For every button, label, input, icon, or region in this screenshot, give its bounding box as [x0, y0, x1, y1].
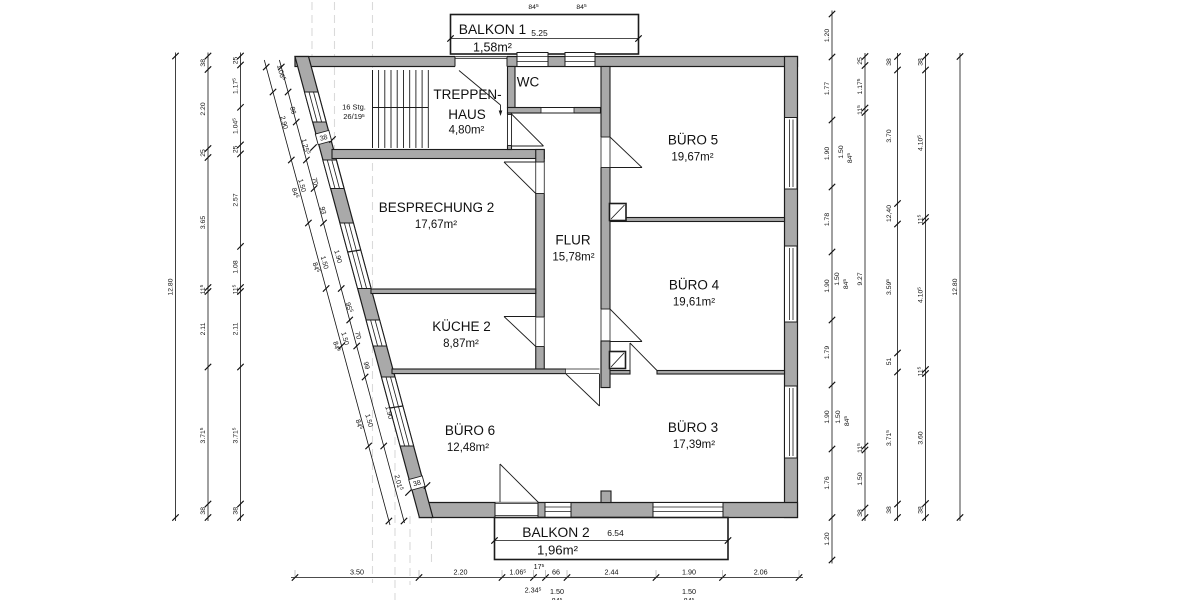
svg-text:BÜRO 5: BÜRO 5: [668, 133, 718, 148]
svg-text:1.20: 1.20: [824, 29, 831, 42]
svg-text:BÜRO 3: BÜRO 3: [668, 420, 718, 435]
svg-text:38: 38: [857, 509, 864, 517]
svg-text:1.08: 1.08: [233, 260, 240, 273]
svg-text:2.06: 2.06: [754, 568, 768, 577]
svg-text:BÜRO 4: BÜRO 4: [669, 278, 720, 293]
svg-text:38: 38: [233, 507, 240, 515]
svg-text:38: 38: [918, 506, 925, 514]
svg-text:BALKON 2: BALKON 2: [522, 525, 589, 540]
svg-text:1.50: 1.50: [838, 145, 845, 158]
svg-text:1.50: 1.50: [550, 587, 564, 596]
svg-text:38: 38: [886, 58, 893, 66]
svg-text:9.27: 9.27: [857, 272, 864, 285]
svg-text:2.57: 2.57: [233, 193, 240, 206]
svg-text:BALKON 1: BALKON 1: [459, 22, 526, 37]
svg-text:1.50: 1.50: [682, 587, 696, 596]
svg-text:2.11: 2.11: [200, 322, 207, 335]
svg-text:17,39m²: 17,39m²: [673, 439, 715, 451]
svg-text:FLUR: FLUR: [555, 233, 591, 248]
svg-text:4,80m²: 4,80m²: [449, 125, 485, 137]
svg-text:2.11: 2.11: [233, 322, 240, 335]
svg-text:3.70: 3.70: [886, 129, 893, 142]
svg-text:1,96m²: 1,96m²: [537, 543, 579, 558]
svg-text:1.90: 1.90: [824, 279, 831, 292]
svg-text:1.90: 1.90: [824, 147, 831, 160]
svg-text:1,58m²: 1,58m²: [473, 41, 512, 55]
svg-text:TREPPEN-: TREPPEN-: [433, 87, 501, 102]
svg-text:HAUS: HAUS: [448, 107, 486, 122]
svg-text:19,61m²: 19,61m²: [673, 297, 715, 309]
svg-text:5.25: 5.25: [531, 28, 548, 38]
svg-text:BESPRECHUNG 2: BESPRECHUNG 2: [379, 200, 495, 215]
svg-text:1.77: 1.77: [824, 82, 831, 95]
svg-text:1.78: 1.78: [824, 213, 831, 226]
svg-text:38: 38: [200, 59, 207, 67]
svg-text:2.20: 2.20: [200, 102, 207, 115]
svg-text:15,78m²: 15,78m²: [552, 252, 594, 264]
svg-text:38: 38: [918, 58, 925, 66]
svg-text:66: 66: [552, 568, 560, 577]
svg-text:12.80: 12.80: [168, 278, 175, 295]
svg-text:12,48m²: 12,48m²: [447, 442, 489, 454]
svg-text:6.54: 6.54: [607, 528, 624, 538]
svg-text:2.44: 2.44: [605, 568, 619, 577]
svg-text:3.60: 3.60: [918, 431, 925, 444]
svg-text:19,67m²: 19,67m²: [671, 152, 713, 164]
svg-text:2.20: 2.20: [454, 568, 468, 577]
svg-text:KÜCHE 2: KÜCHE 2: [432, 319, 491, 334]
svg-text:17,67m²: 17,67m²: [415, 219, 457, 231]
svg-text:12,40: 12,40: [886, 205, 893, 222]
svg-text:1.50: 1.50: [857, 472, 864, 485]
svg-text:3.50: 3.50: [350, 568, 364, 577]
svg-text:1.50: 1.50: [834, 272, 841, 285]
svg-text:1.79: 1.79: [824, 346, 831, 359]
svg-text:BÜRO 6: BÜRO 6: [445, 423, 495, 438]
svg-text:25: 25: [857, 57, 864, 65]
svg-text:8,87m²: 8,87m²: [443, 338, 479, 350]
svg-text:16 Stg.: 16 Stg.: [342, 103, 366, 112]
svg-text:25: 25: [233, 57, 240, 65]
svg-text:25: 25: [200, 149, 207, 157]
svg-text:1.90: 1.90: [824, 410, 831, 423]
svg-text:51: 51: [886, 358, 893, 366]
svg-text:12.80: 12.80: [952, 278, 959, 295]
svg-text:26/195: 26/195: [343, 112, 365, 121]
svg-text:1.50: 1.50: [835, 410, 842, 423]
svg-text:38: 38: [200, 507, 207, 515]
svg-text:38: 38: [886, 506, 893, 514]
svg-text:WC: WC: [517, 75, 540, 90]
svg-text:1.76: 1.76: [824, 476, 831, 489]
svg-text:1.90: 1.90: [682, 568, 696, 577]
svg-text:1.20: 1.20: [824, 532, 831, 545]
svg-text:25: 25: [233, 145, 240, 153]
svg-text:3.65: 3.65: [200, 216, 207, 229]
